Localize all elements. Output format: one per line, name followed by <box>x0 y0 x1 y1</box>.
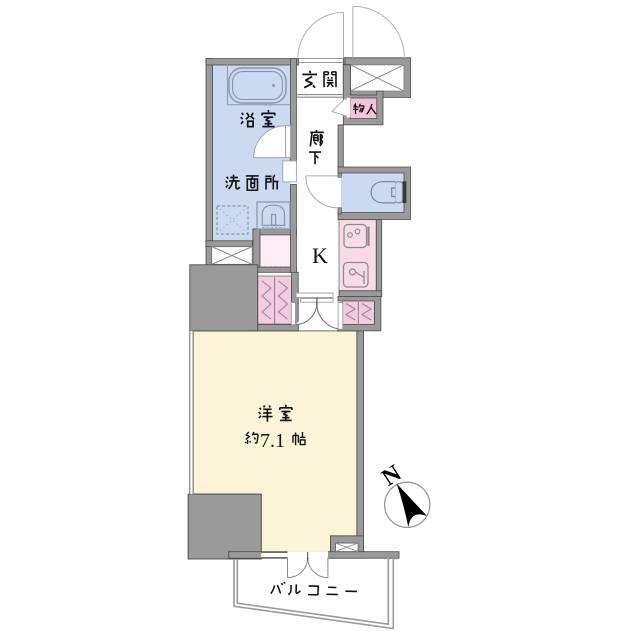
svg-text:K: K <box>312 243 328 268</box>
svg-text:7.1: 7.1 <box>260 430 285 452</box>
